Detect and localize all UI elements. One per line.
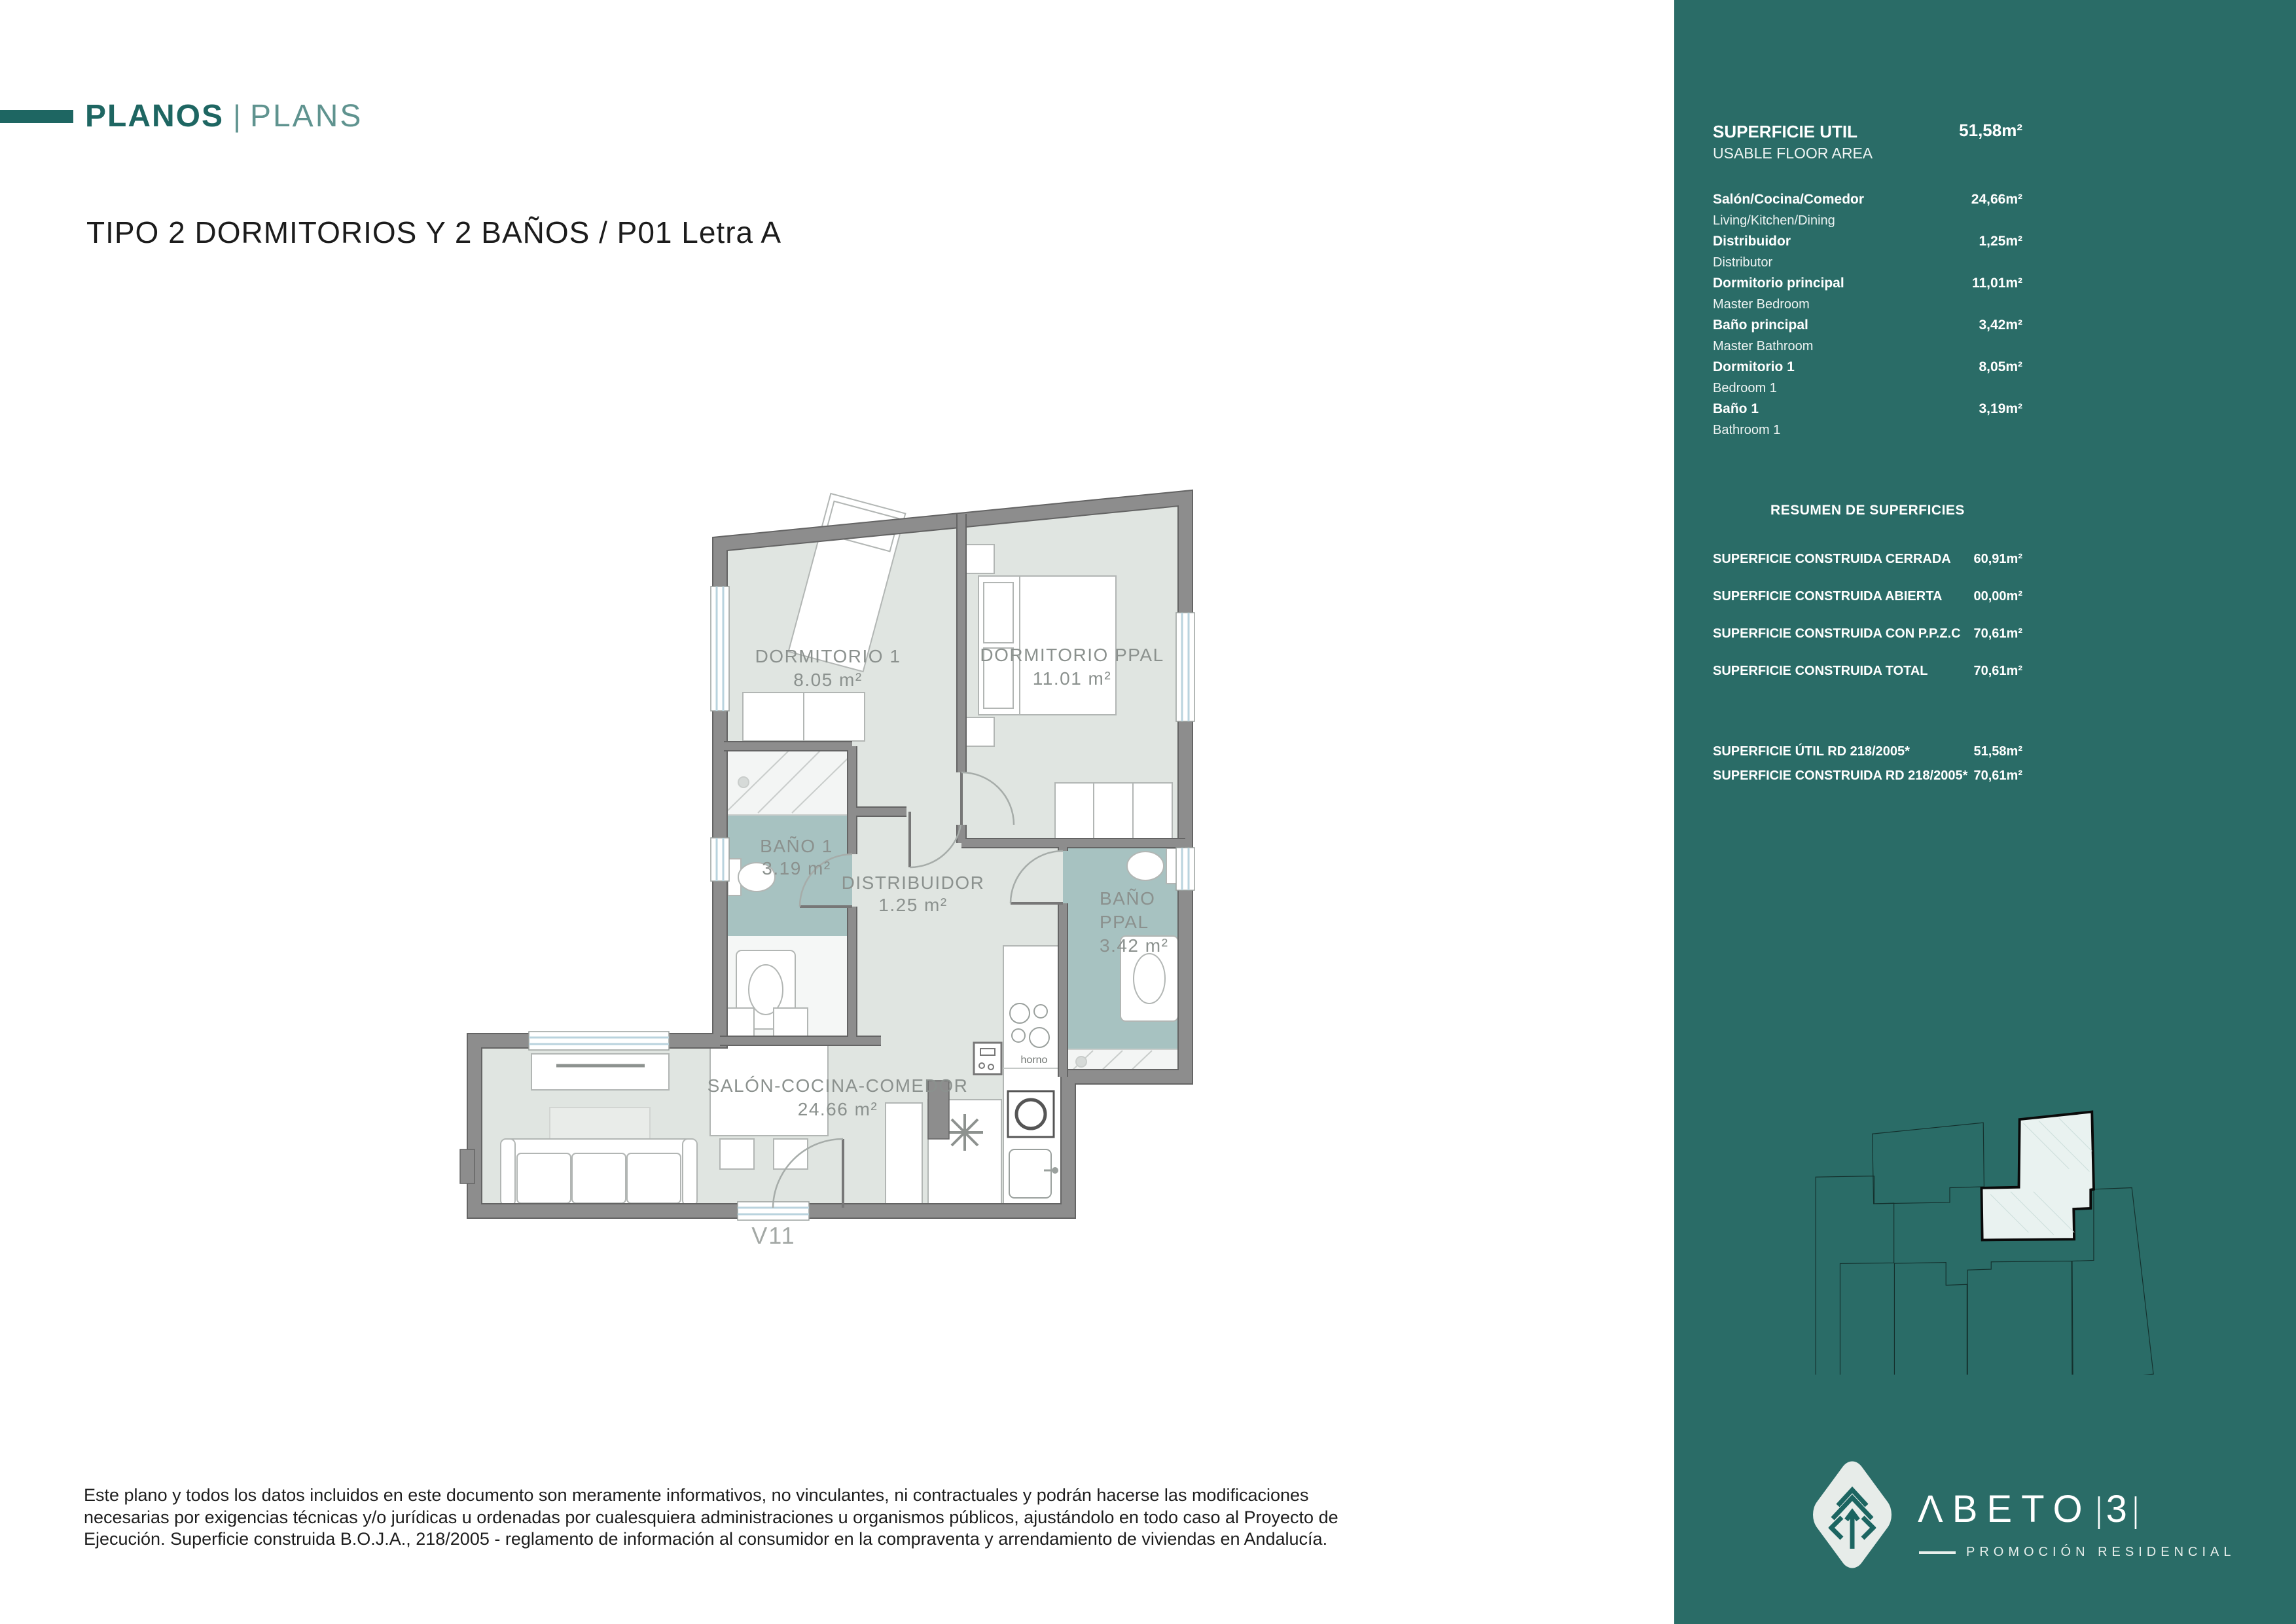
room-row: Baño 1 3,19m² Bathroom 1: [1713, 398, 2022, 440]
label-living-room: SALÓN-COCINA-COMEDOR: [708, 1075, 969, 1096]
room-label-en: Living/Kitchen/Dining: [1713, 211, 2022, 230]
room-row: Dormitorio 1 8,05m² Bedroom 1: [1713, 356, 2022, 398]
window-bedroom1: [711, 586, 729, 711]
summary-value: 70,61m²: [1974, 662, 2023, 680]
floor-plan-drawing: DORMITORIO 1 8.05 m² DORMITORIO PPAL 11.…: [452, 484, 1211, 1270]
window-master-bathroom: [1176, 848, 1194, 890]
toilet-master: [1127, 848, 1179, 884]
wardrobe-bedroom1: [743, 693, 865, 741]
room-row: Baño principal 3,42m² Master Bathroom: [1713, 314, 2022, 356]
area-panel: SUPERFICIE UTIL 51,58m² USABLE FLOOR ARE…: [1674, 0, 2296, 1624]
kitchen-sink-icon: [1009, 1149, 1058, 1198]
bathroom1-shower: [726, 748, 852, 815]
window-living-room: [529, 1032, 669, 1050]
freezer-star-icon: [946, 1114, 983, 1151]
header-accent-bar: [0, 110, 73, 123]
room-label-en: Master Bathroom: [1713, 336, 2022, 356]
room-label-es: Baño principal: [1713, 314, 1808, 336]
rd-value: 51,58m²: [1974, 742, 2023, 761]
room-row: Dormitorio principal 11,01m² Master Bedr…: [1713, 272, 2022, 314]
room-label-es: Distribuidor: [1713, 230, 1791, 253]
disclaimer-text: Este plano y todos los datos incluidos e…: [84, 1485, 1367, 1551]
room-label-es: Salón/Cocina/Comedor: [1713, 189, 1864, 211]
logo-tagline: PROMOCIÓN RESIDENCIAL: [1919, 1545, 2235, 1560]
logo-mark: [1801, 1451, 1906, 1581]
summary-label: SUPERFICIE CONSTRUIDA ABIERTA: [1713, 587, 1942, 605]
building-block: [1873, 1123, 1984, 1204]
room-label-en: Bathroom 1: [1713, 420, 2022, 440]
summary-row: SUPERFICIE CONSTRUIDA CON P.P.Z.C 70,61m…: [1713, 624, 2022, 662]
summary-label: SUPERFICIE CONSTRUIDA CON P.P.Z.C: [1713, 624, 1961, 643]
summary-rows: SUPERFICIE CONSTRUIDA CERRADA 60,91m² SU…: [1713, 550, 2022, 699]
logo-name: ΛBETO: [1918, 1487, 2092, 1531]
label-oven: horno: [1021, 1055, 1048, 1066]
building-block: [1816, 1176, 1893, 1375]
rd-value: 70,61m²: [1974, 767, 2023, 785]
label-living-room-area: 24.66 m²: [798, 1099, 878, 1119]
tv-unit: [531, 1054, 669, 1090]
room-value: 1,25m²: [1979, 230, 2022, 253]
plan-sheet: { "header": { "brand_primary": "PLANOS",…: [0, 0, 2296, 1624]
washing-machine-icon: [1008, 1091, 1054, 1137]
label-master-bathroom-area: 3.42 m²: [1100, 935, 1168, 956]
room-label-es: Baño 1: [1713, 398, 1759, 420]
logo-divider: |: [2096, 1490, 2101, 1530]
room-row: Salón/Cocina/Comedor 24,66m² Living/Kitc…: [1713, 189, 2022, 230]
label-master-bathroom-2: PPAL: [1100, 912, 1149, 932]
summary-row: SUPERFICIE CONSTRUIDA TOTAL 70,61m²: [1713, 662, 2022, 699]
oven-control-icon: [974, 1043, 1001, 1074]
label-bathroom1: BAÑO 1: [760, 836, 833, 856]
sofa: [501, 1139, 697, 1206]
room-area-list: Salón/Cocina/Comedor 24,66m² Living/Kitc…: [1713, 189, 2022, 440]
kitchen-counter: [1003, 946, 1064, 1208]
room-value: 24,66m²: [1971, 189, 2022, 211]
usable-value: 51,58m²: [1959, 120, 2022, 141]
room-label-en: Master Bedroom: [1713, 295, 2022, 314]
summary-heading: RESUMEN DE SUPERFICIES: [1713, 503, 2022, 518]
summary-row: SUPERFICIE CONSTRUIDA CERRADA 60,91m²: [1713, 550, 2022, 587]
room-label-es: Dormitorio 1: [1713, 356, 1795, 378]
brand-divider: |: [233, 98, 241, 134]
label-window-v11: V11: [751, 1222, 795, 1249]
brand-primary: PLANOS: [85, 98, 224, 134]
label-bathroom1-area: 3.19 m²: [762, 858, 831, 878]
brand-header: PLANOS | PLANS: [85, 98, 363, 134]
summary-label: SUPERFICIE CONSTRUIDA TOTAL: [1713, 662, 1928, 680]
summary-label: SUPERFICIE CONSTRUIDA CERRADA: [1713, 550, 1951, 568]
area-panel-content: SUPERFICIE UTIL 51,58m² USABLE FLOOR ARE…: [1713, 0, 2022, 1624]
logo-wordmark: ΛBETO | 3 |: [1918, 1487, 2143, 1531]
building-location-map: [1800, 1080, 2193, 1375]
rd-label: SUPERFICIE ÚTIL RD 218/2005*: [1713, 742, 1910, 761]
summary-value: 70,61m²: [1974, 624, 2023, 643]
window-bathroom1: [711, 838, 729, 881]
building-block: [1894, 1263, 1967, 1375]
label-distributor-area: 1.25 m²: [878, 895, 947, 915]
room-value: 3,19m²: [1979, 398, 2022, 420]
room-value: 3,42m²: [1979, 314, 2022, 336]
label-master-bathroom-1: BAÑO: [1100, 888, 1155, 909]
rd-row: SUPERFICIE CONSTRUIDA RD 218/2005* 70,61…: [1713, 767, 2022, 791]
room-value: 8,05m²: [1979, 356, 2022, 378]
building-location-drawing: [1800, 1080, 2193, 1375]
usable-label-en: USABLE FLOOR AREA: [1713, 143, 2022, 164]
rd-label: SUPERFICIE CONSTRUIDA RD 218/2005*: [1713, 767, 1967, 785]
logo-divider: |: [2133, 1490, 2138, 1530]
usable-label-es: SUPERFICIE UTIL: [1713, 120, 1857, 143]
tagline-text: PROMOCIÓN RESIDENCIAL: [1966, 1545, 2235, 1560]
logo-diamond-icon: [1801, 1451, 1906, 1581]
tagline-rule: [1919, 1551, 1956, 1554]
summary-row: SUPERFICIE CONSTRUIDA ABIERTA 00,00m²: [1713, 587, 2022, 624]
label-master-bedroom: DORMITORIO PPAL: [980, 645, 1164, 665]
highlighted-unit: [1982, 1111, 2094, 1240]
kitchen-peninsula: [886, 1103, 922, 1206]
building-block: [1967, 1261, 2072, 1375]
usable-area-block: SUPERFICIE UTIL 51,58m² USABLE FLOOR ARE…: [1713, 120, 2022, 164]
page-title: TIPO 2 DORMITORIOS Y 2 BAÑOS / P01 Letra…: [86, 215, 781, 250]
floor-plan: DORMITORIO 1 8.05 m² DORMITORIO PPAL 11.…: [452, 484, 1211, 1270]
wall-notch: [460, 1149, 475, 1183]
building-block: [2072, 1187, 2153, 1375]
label-bedroom1: DORMITORIO 1: [755, 646, 901, 666]
logo-number: 3: [2106, 1487, 2128, 1531]
label-master-bedroom-area: 11.01 m²: [1033, 668, 1111, 689]
room-label-en: Bedroom 1: [1713, 378, 2022, 398]
label-bedroom1-area: 8.05 m²: [793, 670, 862, 690]
brand-secondary: PLANS: [250, 98, 363, 134]
room-label-es: Dormitorio principal: [1713, 272, 1844, 295]
room-row: Distribuidor 1,25m² Distributor: [1713, 230, 2022, 272]
rd-row: SUPERFICIE ÚTIL RD 218/2005* 51,58m²: [1713, 742, 2022, 767]
room-label-en: Distributor: [1713, 253, 2022, 272]
rd-rows: SUPERFICIE ÚTIL RD 218/2005* 51,58m² SUP…: [1713, 742, 2022, 791]
window-master-bedroom: [1176, 613, 1194, 721]
label-distributor: DISTRIBUIDOR: [842, 873, 985, 893]
room-value: 11,01m²: [1972, 272, 2022, 295]
wardrobe-master: [1055, 783, 1172, 842]
summary-value: 00,00m²: [1974, 587, 2023, 605]
summary-value: 60,91m²: [1974, 550, 2023, 568]
